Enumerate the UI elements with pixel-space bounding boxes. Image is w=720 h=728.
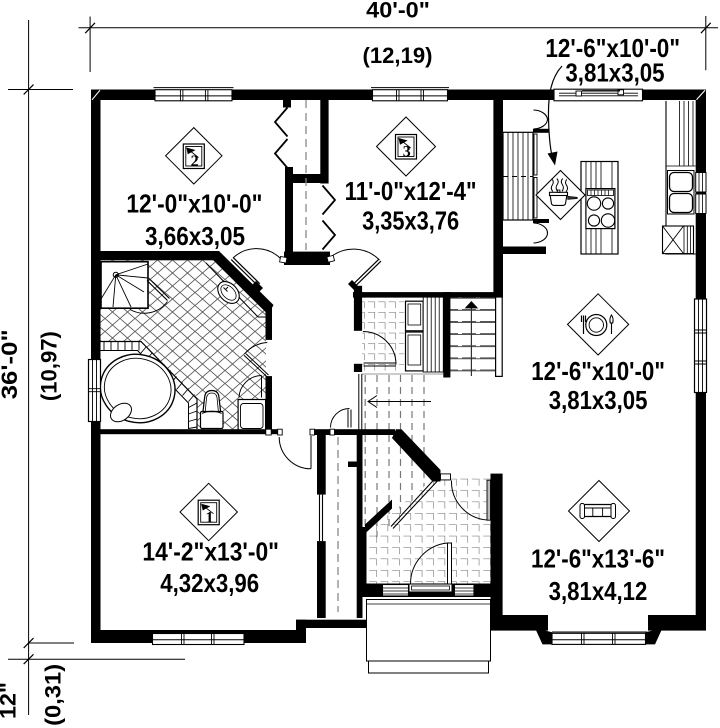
svg-text:12'-6"x13'-6": 12'-6"x13'-6" — [531, 543, 665, 573]
svg-text:3,81x4,12: 3,81x4,12 — [549, 576, 648, 606]
svg-text:36'-0": 36'-0" — [0, 329, 22, 399]
svg-text:3,66x3,05: 3,66x3,05 — [145, 221, 245, 251]
svg-text:2: 2 — [191, 153, 199, 170]
svg-text:11'-0"x12'-4": 11'-0"x12'-4" — [345, 176, 477, 206]
svg-text:12'-6"x10'-0": 12'-6"x10'-0" — [531, 356, 665, 386]
svg-text:4,32x3,96: 4,32x3,96 — [160, 568, 259, 598]
svg-text:(0,31): (0,31) — [41, 664, 66, 726]
svg-text:40'-0": 40'-0" — [366, 0, 430, 23]
svg-text:3: 3 — [403, 144, 411, 161]
svg-text:(12,19): (12,19) — [363, 43, 433, 68]
svg-text:12'-0"x10'-0": 12'-0"x10'-0" — [126, 189, 262, 219]
svg-text:1: 1 — [206, 509, 214, 526]
svg-text:3,35x3,76: 3,35x3,76 — [362, 205, 459, 235]
svg-text:3,81x3,05: 3,81x3,05 — [565, 58, 664, 88]
svg-text:12": 12" — [0, 682, 21, 719]
svg-text:(10,97): (10,97) — [37, 331, 62, 401]
svg-text:14'-2"x13'-0": 14'-2"x13'-0" — [142, 537, 279, 567]
svg-text:3,81x3,05: 3,81x3,05 — [549, 385, 648, 415]
